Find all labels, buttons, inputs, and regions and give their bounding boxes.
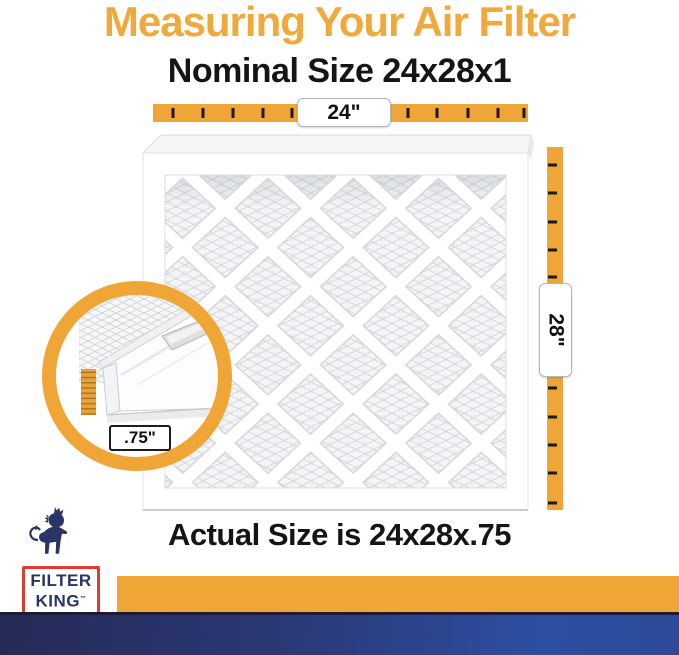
logo-line2: KING™ [36,590,87,611]
nominal-size-heading: Nominal Size 24x28x1 [0,52,679,91]
filter-top-face [143,135,531,153]
depth-magnifier: .75" [39,278,235,474]
actual-size-caption: Actual Size is 24x28x.75 [0,517,679,553]
filter-king-logo: FILTER KING™ [22,566,100,616]
footer-bar [0,612,679,655]
accent-bar [117,576,679,612]
logo-line1: FILTER [30,572,91,590]
page-title: Measuring Your Air Filter [0,0,679,46]
height-measurement-label: 28" [539,283,572,377]
depth-mini-ruler [81,369,96,415]
trademark-symbol: ™ [80,596,87,602]
lion-icon [24,506,88,564]
height-measurement-text: 28" [544,313,568,346]
depth-measurement-label: .75" [109,425,171,451]
infographic-page: Measuring Your Air Filter Nominal Size 2… [0,0,679,655]
width-measurement-label: 24" [297,98,391,127]
